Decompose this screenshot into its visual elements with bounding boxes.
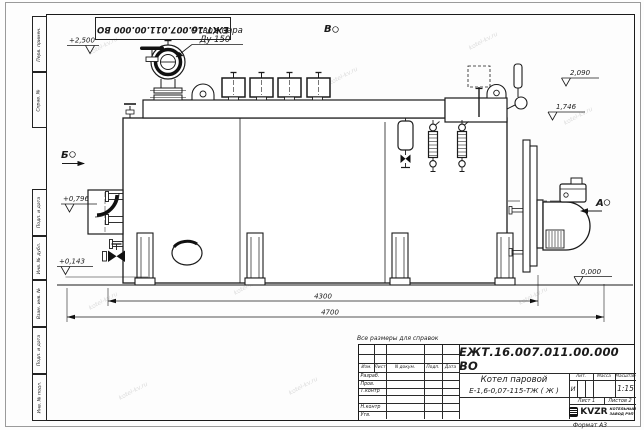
tb-row-prov: Пров. bbox=[359, 380, 386, 388]
tb-header-ndoc: N докум. bbox=[386, 363, 424, 372]
margin-stamp-inv-podl: Инв. № подл. bbox=[32, 374, 47, 421]
format-label: Формат А3 bbox=[545, 422, 635, 429]
title-block: Изм. Лист N докум. Подп. Дата Разраб. Пр… bbox=[358, 344, 635, 421]
kvzr-logo-text: KVZR bbox=[580, 407, 607, 417]
tb-scale-value: 1:15 bbox=[615, 380, 636, 397]
tb-header-izm: Изм. bbox=[359, 363, 374, 372]
tb-row-utv: Утв. bbox=[359, 411, 386, 419]
tb-header-list: Лист bbox=[374, 363, 386, 372]
tb-sheets-cell: Листов 2 bbox=[604, 397, 636, 404]
tb-row-nkontr: Н.контр bbox=[359, 403, 386, 411]
tb-scale-label: Масштаб bbox=[615, 373, 636, 380]
tb-product-model: Е-1,6-0,07-115-ТЖ ( Ж ) bbox=[459, 385, 569, 395]
tb-product-name: Котел паровой bbox=[459, 375, 569, 385]
rotated-doc-number-stamp: ЕЖТ.16.007.011.00.000 ВО bbox=[95, 17, 231, 40]
tb-lit-label: Лит. bbox=[569, 373, 593, 380]
margin-stamp-podp-data-2: Подп. и дата bbox=[32, 327, 47, 374]
tb-header-data: Дата bbox=[442, 363, 459, 372]
tb-row-razrab: Разраб. bbox=[359, 372, 386, 380]
tb-mass-label: Масса bbox=[593, 373, 615, 380]
tb-sheet-cell: Лист 1 bbox=[569, 397, 604, 404]
tb-doc-number: ЕЖТ.16.007.011.00.000 ВО bbox=[459, 345, 636, 373]
tb-row-tkontr: Т.контр bbox=[359, 388, 386, 395]
margin-stamp-sprav: Справ. № bbox=[32, 72, 47, 128]
margin-stamp-podp-data-1: Подп. и дата bbox=[32, 189, 47, 236]
kvzr-logo-icon bbox=[569, 407, 578, 417]
tb-lit-value: И bbox=[569, 380, 577, 397]
margin-stamp-perv-primen: Перв. примен. bbox=[32, 16, 47, 72]
margin-stamp-vzam-inv: Взам. инв. № bbox=[32, 280, 47, 327]
reference-note: Все размеры для справок bbox=[357, 335, 438, 342]
company-name: КОТЕЛЬНЫЙ ЗАВОД РЭП bbox=[610, 407, 636, 415]
margin-stamp-inv-dubl: Инв. № дубл. bbox=[32, 236, 47, 280]
tb-company: KVZR КОТЕЛЬНЫЙ ЗАВОД РЭП bbox=[569, 404, 636, 419]
tb-header-podp: Подп. bbox=[424, 363, 442, 372]
